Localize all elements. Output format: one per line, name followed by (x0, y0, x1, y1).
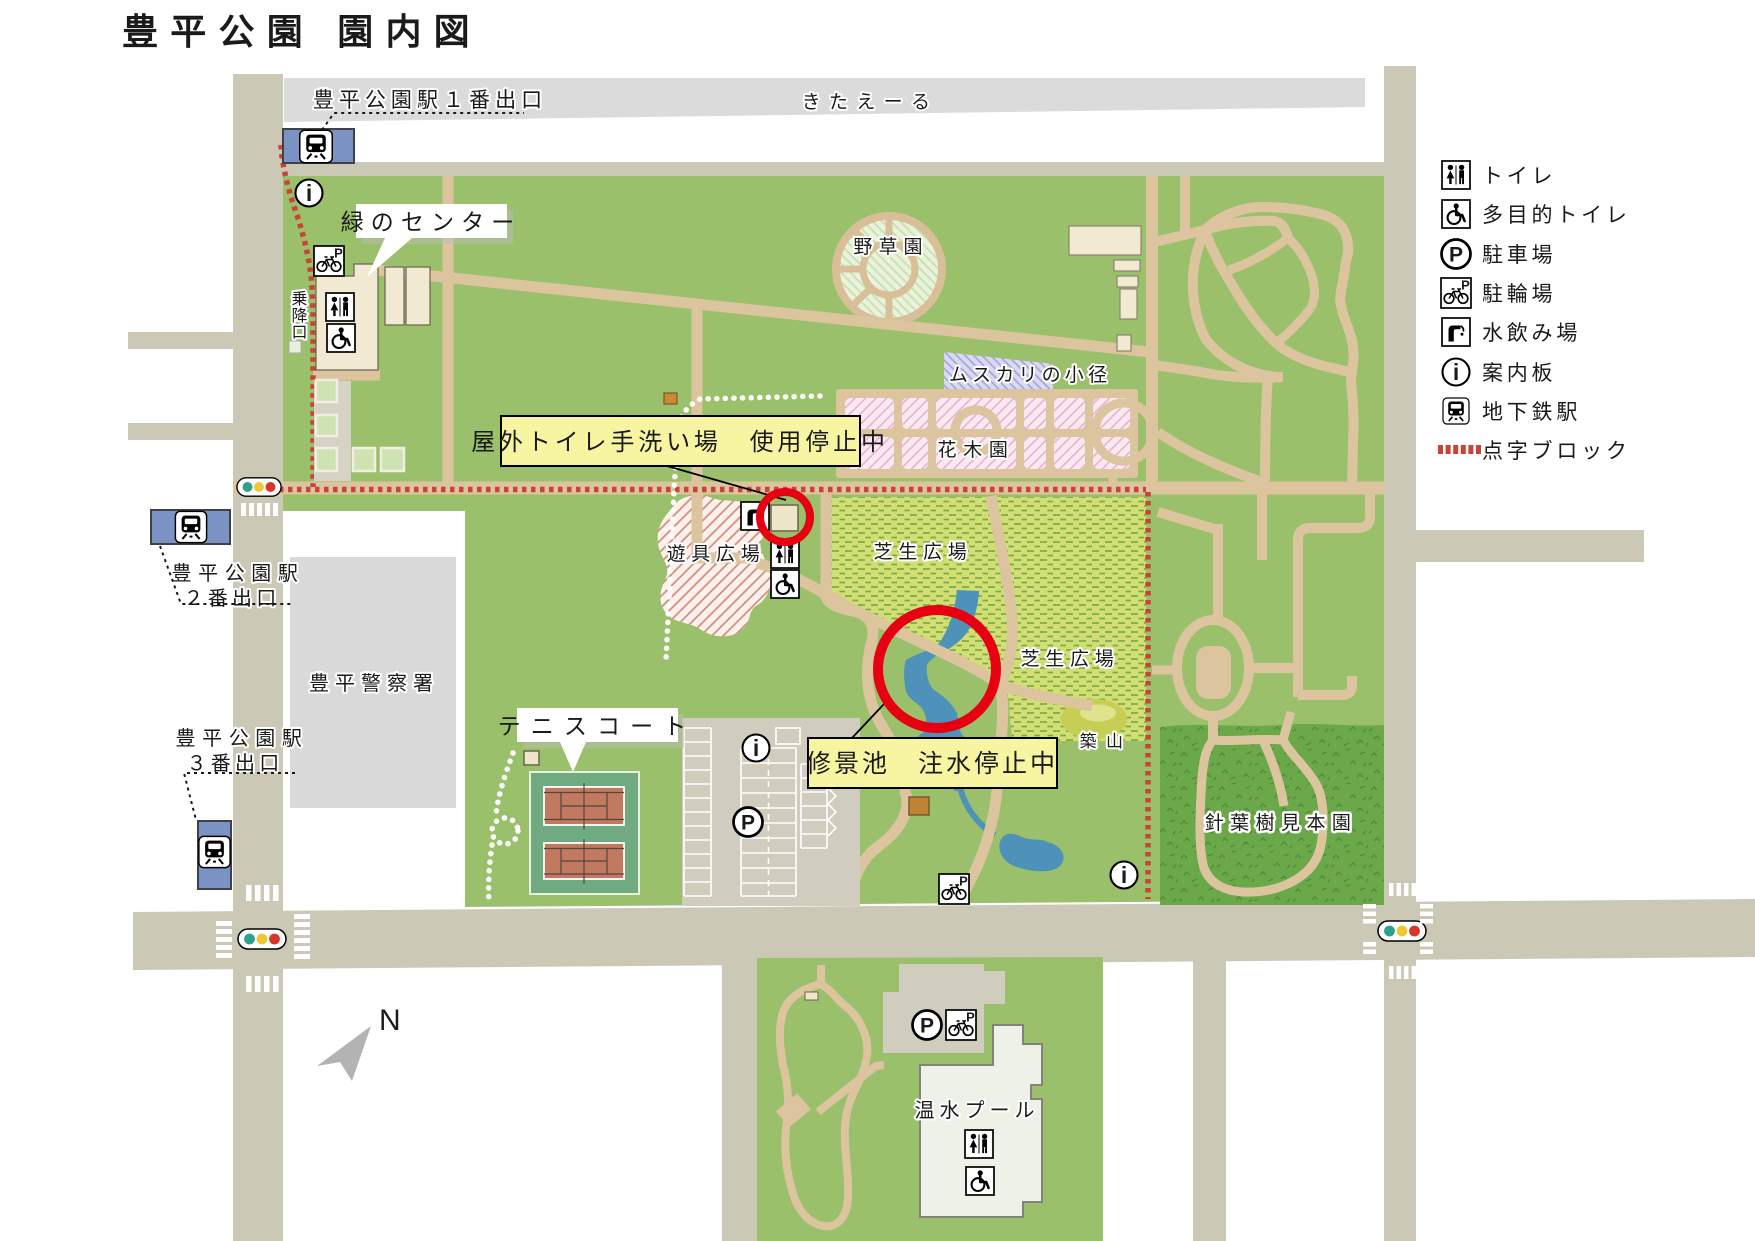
svg-text:豊平公園 園内図: 豊平公園 園内図 (122, 11, 482, 52)
svg-text:乗降口: 乗降口 (289, 290, 308, 340)
svg-text:築山: 築山 (1080, 732, 1133, 751)
svg-text:テニスコート: テニスコート (498, 713, 697, 739)
svg-text:温水プール: 温水プール (915, 1099, 1040, 1122)
svg-text:花木園: 花木園 (938, 439, 1015, 461)
svg-text:野草園: 野草園 (853, 236, 928, 258)
svg-text:緑のセンター: 緑のセンター (341, 209, 522, 235)
svg-text:豊平公園駅: 豊平公園駅 (176, 727, 309, 750)
svg-text:駐車場: 駐車場 (1482, 244, 1556, 267)
svg-text:遊具広場: 遊具広場 (667, 543, 766, 565)
svg-text:３番出口: ３番出口 (187, 752, 284, 775)
svg-text:屋外トイレ手洗い場 使用停止中: 屋外トイレ手洗い場 使用停止中 (471, 429, 889, 456)
svg-text:駐輪場: 駐輪場 (1482, 283, 1556, 306)
svg-text:地下鉄駅: 地下鉄駅 (1482, 401, 1581, 424)
svg-text:多目的トイレ: 多目的トイレ (1482, 204, 1631, 227)
svg-text:N: N (379, 1004, 401, 1037)
svg-text:針葉樹見本園: 針葉樹見本園 (1205, 812, 1358, 834)
svg-text:修景池 注水停止中: 修景池 注水停止中 (806, 750, 1058, 778)
svg-text:案内板: 案内板 (1482, 362, 1556, 385)
svg-text:芝生広場: 芝生広場 (874, 541, 973, 563)
svg-text:豊平公園駅１番出口: 豊平公園駅１番出口 (313, 89, 547, 112)
svg-text:豊平公園駅: 豊平公園駅 (172, 562, 305, 585)
svg-text:２番出口: ２番出口 (184, 587, 281, 610)
svg-text:水飲み場: 水飲み場 (1482, 322, 1581, 345)
svg-text:芝生広場: 芝生広場 (1021, 648, 1120, 670)
svg-text:ムスカリの小径: ムスカリの小径 (949, 364, 1111, 386)
svg-text:トイレ: トイレ (1482, 165, 1556, 188)
svg-text:点字ブロック: 点字ブロック (1482, 440, 1631, 463)
svg-text:きたえーる: きたえーる (802, 92, 939, 113)
svg-text:豊平警察署: 豊平警察署 (309, 672, 439, 695)
